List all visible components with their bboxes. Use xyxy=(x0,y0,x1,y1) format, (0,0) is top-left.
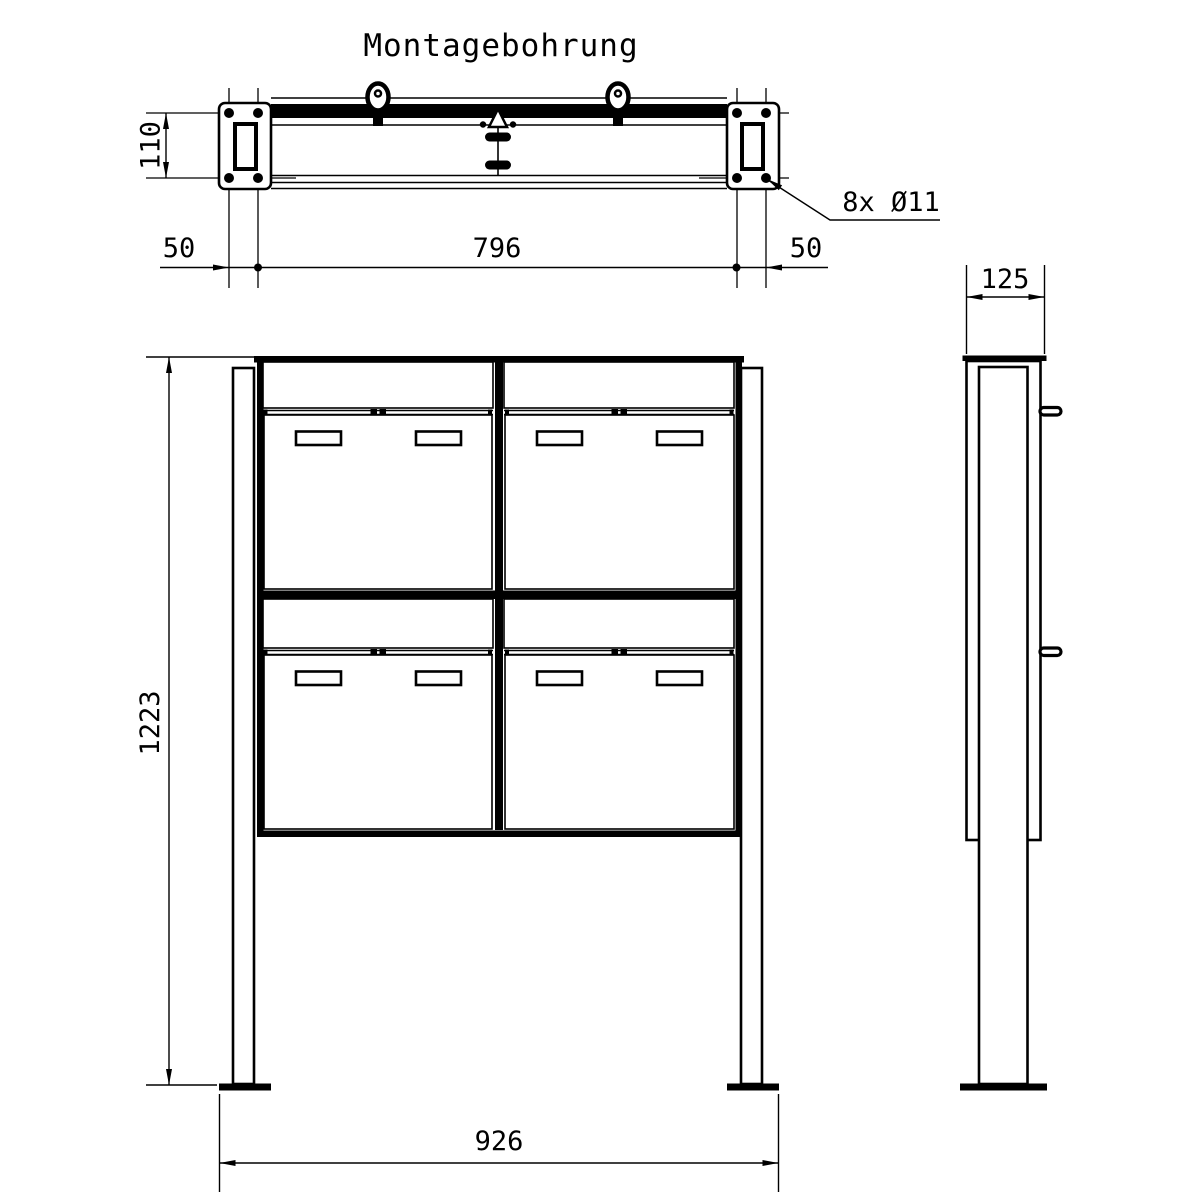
dimension-926: 926 xyxy=(220,1094,779,1192)
upper-strip-left xyxy=(263,362,493,408)
center-joint xyxy=(480,109,516,176)
mounting-plate-right xyxy=(727,103,779,189)
mounting-plate-left xyxy=(219,103,271,189)
dimension-50-right-label: 50 xyxy=(790,233,823,264)
hole-callout-label: 8x Ø11 xyxy=(842,187,940,218)
post-left xyxy=(233,368,254,1084)
top-view-title: Montagebohrung xyxy=(363,28,638,64)
post-right xyxy=(741,368,762,1084)
technical-drawing-page: Montagebohrung xyxy=(0,0,1200,1200)
door-knob-upper xyxy=(1040,408,1061,416)
dimension-1223-label: 1223 xyxy=(135,690,166,755)
post-side xyxy=(979,367,1028,1084)
foot-plate-side xyxy=(960,1084,1047,1091)
nameplate xyxy=(537,432,582,446)
nameplate xyxy=(296,672,341,686)
mounting-hole xyxy=(732,173,742,183)
cabinet-top-cap xyxy=(254,356,744,363)
nameplate xyxy=(537,672,582,686)
mailbox-stand-drawing: Montagebohrung xyxy=(0,0,1200,1200)
dimension-926-label: 926 xyxy=(475,1126,524,1157)
dimension-110: 110 xyxy=(136,113,170,178)
nameplate xyxy=(657,672,702,686)
cabinet-frame-left xyxy=(257,356,264,837)
mounting-hole xyxy=(253,108,263,118)
mounting-hole xyxy=(253,173,263,183)
mounting-hole xyxy=(761,108,771,118)
dimension-796-label: 796 xyxy=(473,233,522,264)
nameplate xyxy=(657,432,702,446)
foot-plate-right xyxy=(727,1084,779,1091)
front-view: 1223 926 xyxy=(135,356,779,1192)
side-view: 125 xyxy=(960,264,1061,1091)
cabinet-bottom-frame xyxy=(257,831,742,838)
nameplate xyxy=(416,672,461,686)
foot-plate-left xyxy=(219,1084,271,1091)
dimension-50-left-label: 50 xyxy=(163,233,196,264)
cabinet-center-divider xyxy=(495,362,503,830)
nameplate xyxy=(416,432,461,446)
dimension-row: 50 796 50 xyxy=(160,233,828,272)
mounting-hole xyxy=(224,108,234,118)
cabinet-frame-right xyxy=(736,356,743,837)
dimension-110-label: 110 xyxy=(136,121,167,170)
mounting-hole xyxy=(732,108,742,118)
lower-strip-left xyxy=(263,599,493,648)
cabinet-side-cap xyxy=(963,356,1047,362)
dimension-125: 125 xyxy=(967,264,1045,354)
dimension-125-label: 125 xyxy=(981,264,1030,295)
door-knob-lower xyxy=(1040,648,1061,656)
nameplate xyxy=(296,432,341,446)
lifting-eyelet-right xyxy=(608,84,629,127)
lower-strip-right xyxy=(504,599,734,648)
mounting-hole xyxy=(224,173,234,183)
upper-strip-right xyxy=(504,362,734,408)
lifting-eyelet-left xyxy=(368,84,389,127)
top-view: Montagebohrung xyxy=(136,28,941,288)
hole-callout: 8x Ø11 xyxy=(767,179,940,220)
